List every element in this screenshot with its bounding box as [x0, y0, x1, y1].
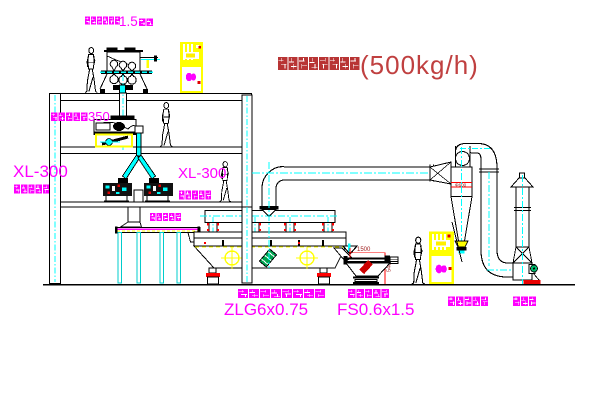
- svg-text:(500kg/h): (500kg/h): [360, 50, 479, 80]
- svg-text:Φ600: Φ600: [455, 183, 467, 188]
- svg-text:1.5: 1.5: [119, 14, 138, 29]
- svg-text:ZLG6x0.75: ZLG6x0.75: [224, 300, 308, 319]
- svg-text:XL-300: XL-300: [178, 165, 226, 182]
- svg-text:1500: 1500: [357, 247, 371, 253]
- svg-text:FS0.6x1.5: FS0.6x1.5: [337, 300, 415, 319]
- svg-text:350: 350: [88, 109, 110, 124]
- svg-text:XL-300: XL-300: [13, 162, 68, 181]
